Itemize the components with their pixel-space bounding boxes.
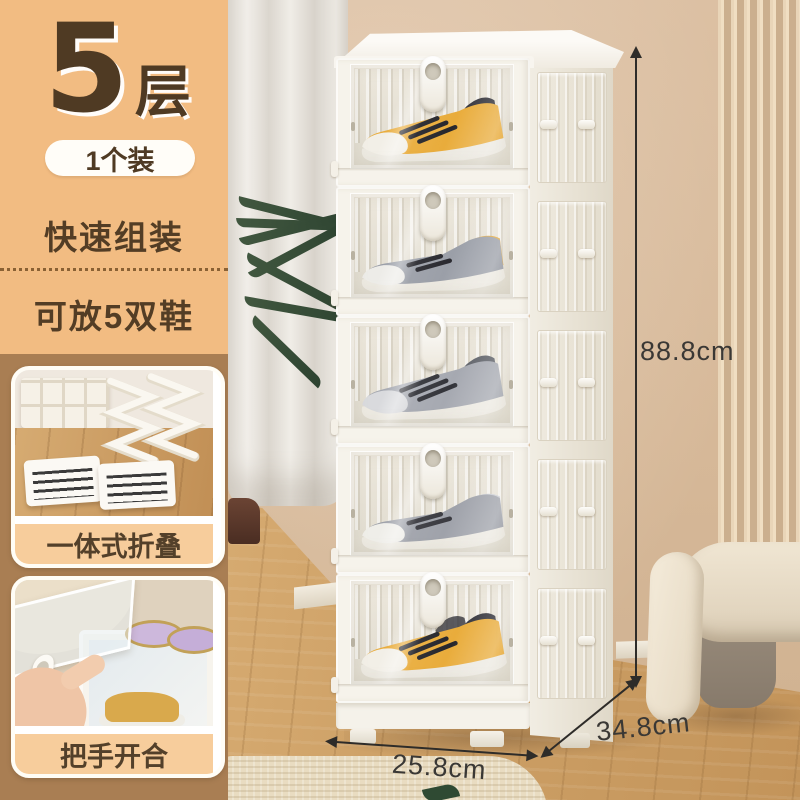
door-hinge-pin (509, 509, 513, 518)
folding-clip (578, 120, 595, 129)
folding-clip (578, 507, 595, 516)
shoe-box-tier-1 (336, 58, 530, 187)
door-hinge-pin (509, 122, 513, 131)
product-card: 88.8cm 34.8cm 25.8cm 5 层 1个装 快速组装 可放5双鞋 (0, 0, 800, 800)
door-hinge-pin (351, 122, 355, 131)
door-hinge-pin (351, 638, 355, 647)
door-hinge-pin (509, 638, 513, 647)
shoe-sole-top (167, 626, 213, 654)
folding-clip (540, 249, 557, 258)
thumbnail-handle: 把手开合 (11, 576, 225, 778)
feature-quick-assembly: 快速组装 (0, 211, 228, 259)
height-dimension-label: 88.8cm (640, 336, 735, 367)
door-hinge-pin (509, 380, 513, 389)
thumbnail-handle-caption: 把手开合 (15, 734, 213, 774)
stool-leg (645, 551, 705, 725)
thumbnail-folding: 一体式折叠 (11, 366, 225, 568)
folding-clip (540, 507, 557, 516)
tier-count: 5 层 (44, 8, 191, 130)
folding-clip (578, 636, 595, 645)
info-panel: 5 层 1个装 快速组装 可放5双鞋 (0, 0, 228, 800)
plant-pot (228, 498, 260, 544)
shoe-box-tier-5 (336, 574, 530, 703)
cabinet-base (336, 703, 530, 729)
cabinet-foot (560, 733, 590, 748)
door-hinge-pin (351, 251, 355, 260)
thumbnail-folding-photo (15, 370, 213, 516)
pack-quantity-badge: 1个装 (45, 140, 195, 176)
tier-count-unit: 层 (135, 64, 191, 120)
door-handle (420, 185, 446, 241)
flat-folded-stack (98, 460, 176, 510)
door-handle (420, 443, 446, 499)
door-handle (420, 572, 446, 628)
shoe-box-tier-4 (336, 445, 530, 574)
height-dimension-arrow (635, 57, 637, 677)
folding-clip (578, 249, 595, 258)
thumbnail-folding-caption: 一体式折叠 (15, 524, 213, 564)
door-handle (420, 56, 446, 112)
cabinet-side-panel (530, 60, 613, 742)
flat-folded-stack (23, 455, 102, 506)
door-hinge-pin (509, 251, 513, 260)
cabinet-foot (470, 731, 504, 747)
folding-clip (578, 378, 595, 387)
shoe-box-tier-3 (336, 316, 530, 445)
yellow-shoe (105, 692, 179, 722)
door-handle (420, 314, 446, 370)
folding-clip (540, 636, 557, 645)
door-hinge-pin (351, 380, 355, 389)
shoe-box-tier-2 (336, 187, 530, 316)
folding-clip (540, 120, 557, 129)
width-dimension-label: 25.8cm (391, 749, 487, 787)
thumbnail-handle-photo (15, 580, 213, 726)
product-photo-scene: 88.8cm 34.8cm 25.8cm (228, 0, 800, 800)
feature-capacity: 可放5双鞋 (0, 290, 228, 338)
dotted-divider (0, 268, 228, 271)
tier-count-number: 5 (44, 8, 129, 130)
woven-rug (228, 756, 548, 800)
folding-clip (540, 378, 557, 387)
door-hinge-pin (351, 509, 355, 518)
